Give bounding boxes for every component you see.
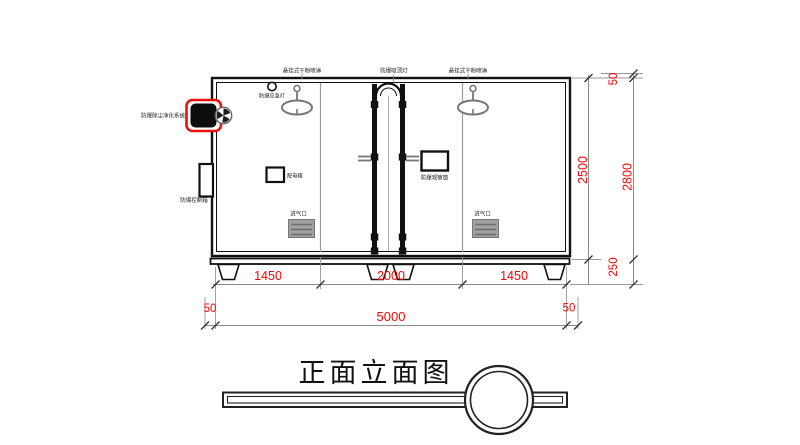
label-sprinkler-right: 悬挂式干粉喷淋 [449, 67, 488, 75]
label-sprinkler-left: 悬挂式干粉喷淋 [283, 67, 322, 75]
dim-body-height: 2500 [576, 156, 590, 184]
label-air-inlet-right: 进气口 [474, 210, 491, 218]
purifier-body [191, 104, 217, 128]
dim-bay-left: 1450 [254, 269, 282, 283]
dim-bay-middle: 2000 [377, 269, 405, 283]
label-ceiling-lamp: 防爆吸顶灯 [380, 67, 408, 75]
control-box-icon [200, 164, 214, 197]
dim-bay-right: 1450 [500, 269, 528, 283]
base-rail [211, 259, 570, 265]
dim-margin-left: 50 [204, 303, 217, 315]
dim-overall-width: 5000 [377, 309, 406, 324]
observation-window-icon [422, 152, 449, 171]
dim-margin-right: 50 [563, 303, 576, 315]
label-air-inlet-left: 进气口 [290, 210, 307, 218]
power-panel-icon [267, 168, 285, 183]
detail-circle-inner [471, 372, 528, 429]
label-observation-window: 防爆观察窗 [421, 174, 449, 182]
air-inlet-left-grille [289, 220, 315, 238]
dim-base-height: 250 [608, 257, 620, 276]
label-purifier: 防爆除尘净化系统 [141, 112, 186, 120]
elevation-drawing-canvas: 1450 2000 1450 50 5000 50 2500 50 2800 2… [0, 0, 800, 445]
air-inlet-right-grille [473, 220, 499, 238]
elevation-drawing-page: 1450 2000 1450 50 5000 50 2500 50 2800 2… [0, 0, 800, 445]
dim-roof-offset: 50 [608, 73, 620, 86]
drawing-title: 正面立面图 [299, 358, 454, 388]
label-power-panel: 配电箱 [287, 172, 303, 180]
emergency-light-icon [268, 82, 276, 90]
label-emergency-light: 防爆应急灯 [259, 92, 285, 100]
dim-overall-height: 2800 [621, 163, 635, 191]
label-control-box: 防爆控制箱 [180, 196, 208, 204]
